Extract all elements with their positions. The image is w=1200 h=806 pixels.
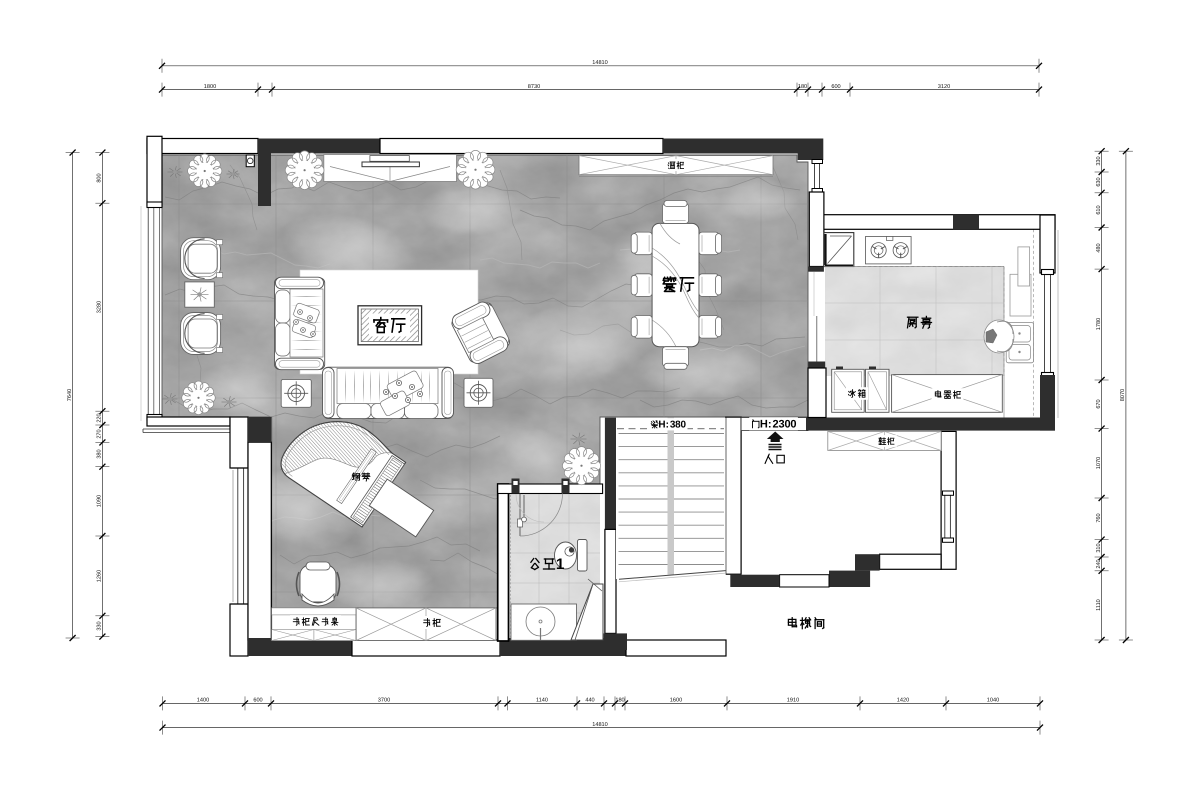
- svg-text:8730: 8730: [528, 84, 540, 90]
- svg-text:3700: 3700: [378, 698, 390, 704]
- svg-text:220: 220: [97, 413, 103, 422]
- svg-text:310: 310: [1096, 543, 1102, 552]
- svg-text:480: 480: [1096, 243, 1102, 252]
- svg-text:1600: 1600: [670, 698, 682, 704]
- svg-text:H: H: [760, 419, 768, 431]
- svg-text:1040: 1040: [987, 698, 999, 704]
- svg-text:1420: 1420: [897, 698, 909, 704]
- svg-text:1800: 1800: [204, 84, 216, 90]
- svg-text:0: 0: [790, 419, 796, 431]
- svg-text:H: H: [658, 420, 665, 431]
- svg-text:8070: 8070: [1120, 389, 1126, 401]
- svg-text:14810: 14810: [592, 722, 608, 728]
- svg-text:610: 610: [1096, 205, 1102, 214]
- svg-text:1110: 1110: [1096, 599, 1102, 611]
- svg-text:330: 330: [97, 621, 103, 630]
- svg-text:600: 600: [253, 698, 262, 704]
- svg-text:240: 240: [1096, 559, 1102, 568]
- svg-text:14810: 14810: [592, 60, 608, 66]
- svg-text:3280: 3280: [97, 301, 103, 313]
- svg-text::: :: [666, 420, 669, 431]
- svg-text:180: 180: [615, 698, 624, 704]
- svg-text:670: 670: [1096, 399, 1102, 408]
- svg-text:630: 630: [1096, 177, 1102, 186]
- svg-text:1260: 1260: [97, 570, 103, 582]
- svg-text:3120: 3120: [938, 84, 950, 90]
- svg-text:1070: 1070: [1096, 457, 1102, 469]
- svg-text:330: 330: [1096, 156, 1102, 165]
- svg-text:1780: 1780: [1096, 318, 1102, 330]
- svg-text:180: 180: [798, 84, 807, 90]
- svg-text:380: 380: [97, 449, 103, 458]
- svg-text:600: 600: [831, 84, 840, 90]
- svg-text:1140: 1140: [536, 698, 548, 704]
- svg-text:800: 800: [97, 173, 103, 182]
- svg-text:760: 760: [1096, 513, 1102, 522]
- svg-text::: :: [768, 419, 772, 431]
- svg-text:7640: 7640: [67, 389, 73, 401]
- svg-text:270: 270: [97, 429, 103, 438]
- svg-text:1910: 1910: [787, 698, 799, 704]
- svg-text:1: 1: [556, 556, 565, 573]
- svg-text:1400: 1400: [197, 698, 209, 704]
- svg-text:0: 0: [681, 420, 687, 431]
- svg-text:440: 440: [585, 698, 594, 704]
- svg-text:1090: 1090: [97, 495, 103, 507]
